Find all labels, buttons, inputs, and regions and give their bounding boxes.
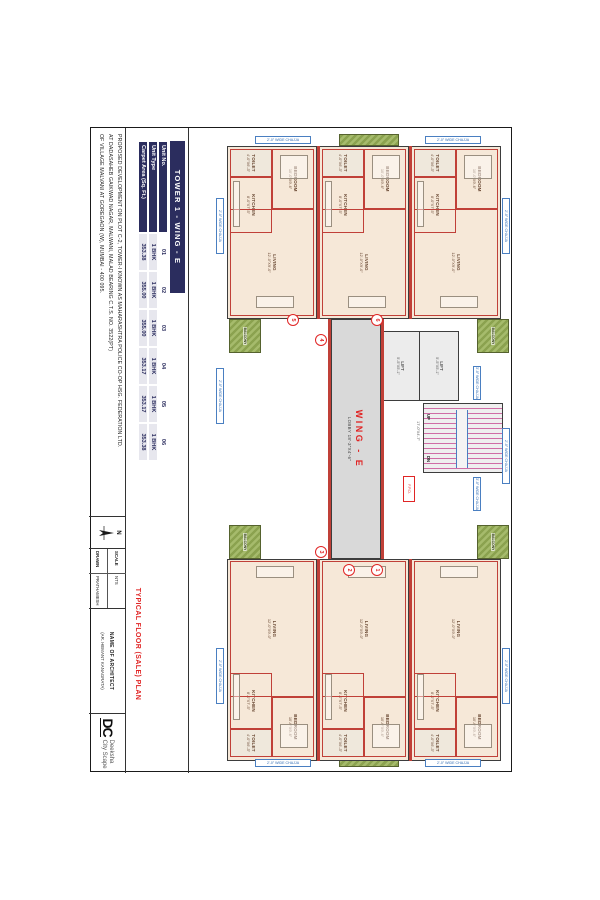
room-label: TOILET4'-0"X6'-3": [430, 734, 440, 752]
room-dimension: 4'-0"X6'-3": [338, 154, 343, 172]
lift-lobby: WING - E LOBBY 18'-3"X4'-6": [331, 319, 381, 559]
room-label: LIVING12'-0"X9'-0": [359, 619, 369, 639]
table-row-label: Unit Type: [148, 141, 158, 233]
table-cell: 1 BHK: [148, 271, 158, 309]
scale-block: SCALE NTS DRAWN PRATHAMESH: [89, 548, 126, 608]
table-cell: 355.00: [138, 271, 148, 309]
red-wall: [328, 319, 331, 559]
project-description: PROPOSED DEVELOPMENT ON PLOT C-2, TOWER-…: [96, 134, 123, 512]
room-toilet: TOILET4'-0"X6'-3": [322, 729, 364, 757]
bed-furniture: [372, 155, 400, 179]
red-wall: [317, 146, 320, 319]
room-dimension: 4'-0"X6'-3": [430, 734, 435, 752]
logo-mark: DC: [101, 718, 115, 736]
room-name: TOILET: [435, 734, 440, 752]
room-name: LIVING: [272, 619, 277, 639]
room-dimension: 4'-0"X6'-3": [338, 734, 343, 752]
logo-name: Deeksha City Scape: [101, 740, 114, 769]
room-toilet: TOILET4'-0"X6'-3": [414, 149, 456, 177]
unit-number: 6: [371, 314, 383, 326]
kitchen-counter: [233, 181, 240, 227]
kitchen-counter: [417, 674, 424, 720]
bed-furniture: [372, 724, 400, 748]
chajja-label: 3'-0" WIDE CHAJJA: [473, 366, 481, 400]
balcony: BALCONY: [229, 525, 261, 559]
lift-label: LIFT: [400, 361, 405, 370]
unit: BEDROOM10'-0"X9'-6"TOILET4'-0"X6'-3"KITC…: [411, 559, 501, 761]
room-dimension: 12'-0"X9'-0": [359, 619, 364, 639]
stair-up-label: UP: [426, 414, 431, 420]
room-name: LIVING: [364, 252, 369, 272]
lift-label: LIFT: [439, 361, 444, 370]
chajja-label: 2'-0" WIDE CHAJJA: [425, 759, 481, 767]
kitchen-counter: [325, 181, 332, 227]
unit: BEDROOM10'-0"X9'-6"TOILET4'-0"X6'-3"KITC…: [411, 146, 501, 319]
unit-number: 4: [315, 334, 327, 346]
chajja-label: 3'-0" WIDE CHAJJA: [473, 477, 481, 511]
kitchen-counter: [417, 181, 424, 227]
unit: BEDROOM10'-0"X9'-6"TOILET4'-0"X6'-3"KITC…: [319, 146, 409, 319]
table-row-label: Unit No.: [158, 141, 168, 233]
table-cell: 353.38: [138, 233, 148, 271]
table-cell: 03: [158, 309, 168, 347]
table-cell: 353.17: [138, 347, 148, 385]
passage-dimension: 17'-0"X4'-7": [416, 396, 420, 466]
compass-icon: [94, 524, 116, 542]
wing-label: WING - E: [355, 410, 365, 469]
room-label: LIVING12'-0"X9'-0": [359, 252, 369, 272]
table-cell: 04: [158, 347, 168, 385]
drawing-sheet: LIFT 5'-5"X5'-1" LIFT 5'-5"X5'-1" UP DN …: [90, 127, 512, 772]
lift-core: LIFT 5'-5"X5'-1" LIFT 5'-5"X5'-1": [381, 331, 459, 401]
room-label: LIVING12'-0"X9'-0": [451, 619, 461, 639]
scale-value: NTS: [108, 574, 126, 608]
red-wall: [381, 319, 384, 559]
unit-table: Unit No.010203040506Unit Type1 BHK1 BHK1…: [138, 141, 168, 461]
room-dimension: 12'-0"X9'-0": [267, 619, 272, 639]
table-cell: 355.00: [138, 309, 148, 347]
scale-label: SCALE: [108, 549, 126, 574]
table-row-label: Carpet Area (Sq. Ft.): [138, 141, 148, 233]
room-living: LIVING12'-0"X9'-0": [414, 561, 498, 697]
table-cell: 01: [158, 233, 168, 271]
chajja-label: 2'-0" WIDE CHAJJA: [502, 648, 510, 704]
room-name: LIVING: [456, 619, 461, 639]
lift-shaft: LIFT 5'-5"X5'-1": [382, 332, 420, 400]
project-line: AT DADASAHEB GAIKWAD NAGAR, MALWANI, MAL…: [105, 134, 114, 512]
red-wall: [409, 146, 412, 319]
room-label: LIVING12'-0"X9'-0": [267, 252, 277, 272]
kitchen-counter: [233, 674, 240, 720]
table-cell: 353.38: [138, 423, 148, 461]
chajja-label: 2'-0" WIDE CHAJJA: [216, 648, 224, 704]
lobby-label: LOBBY 18'-3"X4'-6": [348, 417, 353, 461]
room-name: TOILET: [343, 734, 348, 752]
chajja-label: 2'-0" WIDE CHAJJA: [425, 136, 481, 144]
chajja-label: 2'-0" WIDE CHAJJA: [216, 198, 224, 254]
table-cell: 1 BHK: [148, 309, 158, 347]
room-dimension: 12'-0"X9'-0": [451, 619, 456, 639]
lift-dim: 5'-5"X5'-1": [435, 357, 439, 375]
floor-plan: LIFT 5'-5"X5'-1" LIFT 5'-5"X5'-1" UP DN …: [189, 128, 511, 773]
table-cell: 02: [158, 271, 168, 309]
stair-dn-label: DN: [426, 456, 431, 462]
room-toilet: TOILET4'-0"X6'-3": [322, 149, 364, 177]
room-label: TOILET4'-0"X6'-3": [246, 734, 256, 752]
room-dimension: 4'-0"X6'-3": [246, 154, 251, 172]
stair-handrail: [456, 410, 468, 468]
architect-block: NAME OF ARCHITECT (AR. HEMANT KANAGRATA): [89, 608, 126, 713]
room-label: TOILET4'-0"X6'-3": [338, 154, 348, 172]
lift-shaft: LIFT 5'-5"X5'-1": [420, 332, 459, 400]
chajja-label: 2'-0" WIDE CHAJJA: [216, 368, 224, 424]
sofa-furniture: [440, 296, 478, 308]
screenshot-canvas: LIFT 5'-5"X5'-1" LIFT 5'-5"X5'-1" UP DN …: [0, 0, 600, 900]
table-cell: 1 BHK: [148, 423, 158, 461]
fire-duct-label: F.P.D.: [403, 476, 415, 502]
unit: BEDROOM10'-0"X9'-6"TOILET4'-0"X6'-3"KITC…: [227, 146, 317, 319]
red-wall: [317, 559, 320, 761]
room-name: LIVING: [272, 252, 277, 272]
drawn-label: DRAWN: [89, 549, 107, 574]
drawn-value: PRATHAMESH: [89, 574, 107, 608]
room-name: LIVING: [456, 252, 461, 272]
staircase: UP DN: [423, 403, 503, 473]
bed-furniture: [280, 724, 308, 748]
balcony: BALCONY: [229, 319, 261, 353]
unit-number: 2: [343, 564, 355, 576]
project-line: PROPOSED DEVELOPMENT ON PLOT C-2, TOWER-…: [114, 134, 123, 512]
architect-label: NAME OF ARCHITECT: [109, 632, 115, 690]
room-name: TOILET: [435, 154, 440, 172]
rotated-sheet: LIFT 5'-5"X5'-1" LIFT 5'-5"X5'-1" UP DN …: [0, 0, 600, 900]
room-living: LIVING12'-0"X9'-0": [322, 561, 406, 697]
north-compass: N: [89, 516, 126, 548]
room-dimension: 12'-0"X9'-0": [359, 252, 364, 272]
room-label: TOILET4'-0"X6'-3": [430, 154, 440, 172]
table-cell: 1 BHK: [148, 347, 158, 385]
table-row: Unit Type1 BHK1 BHK1 BHK1 BHK1 BHK1 BHK: [148, 141, 158, 461]
chajja-label: 2'-0" WIDE CHAJJA: [255, 136, 311, 144]
room-name: TOILET: [343, 154, 348, 172]
table-row: Unit No.010203040506: [158, 141, 168, 461]
room-label: LIVING12'-0"X9'-0": [451, 252, 461, 272]
project-line: OF VILLAGE MALVANI AT GOREGAON (W), MUMB…: [96, 134, 105, 512]
kitchen-counter: [325, 674, 332, 720]
table-cell: 06: [158, 423, 168, 461]
unit: BEDROOM10'-0"X9'-6"TOILET4'-0"X6'-3"KITC…: [319, 559, 409, 761]
sofa-furniture: [440, 566, 478, 578]
balcony: BALCONY: [477, 319, 509, 353]
chajja-label: 2'-0" WIDE CHAJJA: [502, 428, 510, 484]
room-toilet: TOILET4'-0"X6'-3": [230, 149, 272, 177]
room-dimension: 12'-0"X9'-0": [267, 252, 272, 272]
red-wall: [409, 559, 412, 761]
room-name: TOILET: [251, 734, 256, 752]
sofa-furniture: [348, 296, 386, 308]
bed-furniture: [280, 155, 308, 179]
balcony: BALCONY: [477, 525, 509, 559]
table-cell: 1 BHK: [148, 233, 158, 271]
room-name: LIVING: [364, 619, 369, 639]
room-name: TOILET: [251, 154, 256, 172]
table-row: Carpet Area (Sq. Ft.)353.38355.00355.003…: [138, 141, 148, 461]
unit-number: 3: [315, 546, 327, 558]
chajja-label: 2'-0" WIDE CHAJJA: [502, 198, 510, 254]
table-cell: 353.17: [138, 385, 148, 423]
sofa-furniture: [256, 566, 294, 578]
room-label: TOILET4'-0"X6'-3": [246, 154, 256, 172]
room-dimension: 4'-0"X6'-3": [246, 734, 251, 752]
room-label: LIVING12'-0"X9'-0": [267, 619, 277, 639]
north-label: N: [116, 530, 122, 534]
unit: BEDROOM10'-0"X9'-6"TOILET4'-0"X6'-3"KITC…: [227, 559, 317, 761]
divider-line: [188, 128, 189, 773]
room-living: LIVING12'-0"X9'-0": [230, 561, 314, 697]
table-cell: 1 BHK: [148, 385, 158, 423]
firm-logo: DC Deeksha City Scape: [89, 713, 126, 773]
balcony: [339, 134, 399, 146]
drawing-title: TYPICAL FLOOR (SALE) PLAN: [129, 558, 141, 730]
lift-dim: 5'-5"X5'-1": [396, 357, 400, 375]
table-cell: 05: [158, 385, 168, 423]
room-toilet: TOILET4'-0"X6'-3": [230, 729, 272, 757]
architect-value: (AR. HEMANT KANAGRATA): [101, 632, 106, 690]
room-dimension: 12'-0"X9'-0": [451, 252, 456, 272]
room-toilet: TOILET4'-0"X6'-3": [414, 729, 456, 757]
room-dimension: 4'-0"X6'-3": [430, 154, 435, 172]
room-label: TOILET4'-0"X6'-3": [338, 734, 348, 752]
sofa-furniture: [256, 296, 294, 308]
unit-number: 1: [371, 564, 383, 576]
chajja-label: 2'-0" WIDE CHAJJA: [255, 759, 311, 767]
unit-number: 5: [287, 314, 299, 326]
bed-furniture: [464, 155, 492, 179]
bed-furniture: [464, 724, 492, 748]
table-title: TOWER 1 - WING - E: [170, 141, 185, 293]
